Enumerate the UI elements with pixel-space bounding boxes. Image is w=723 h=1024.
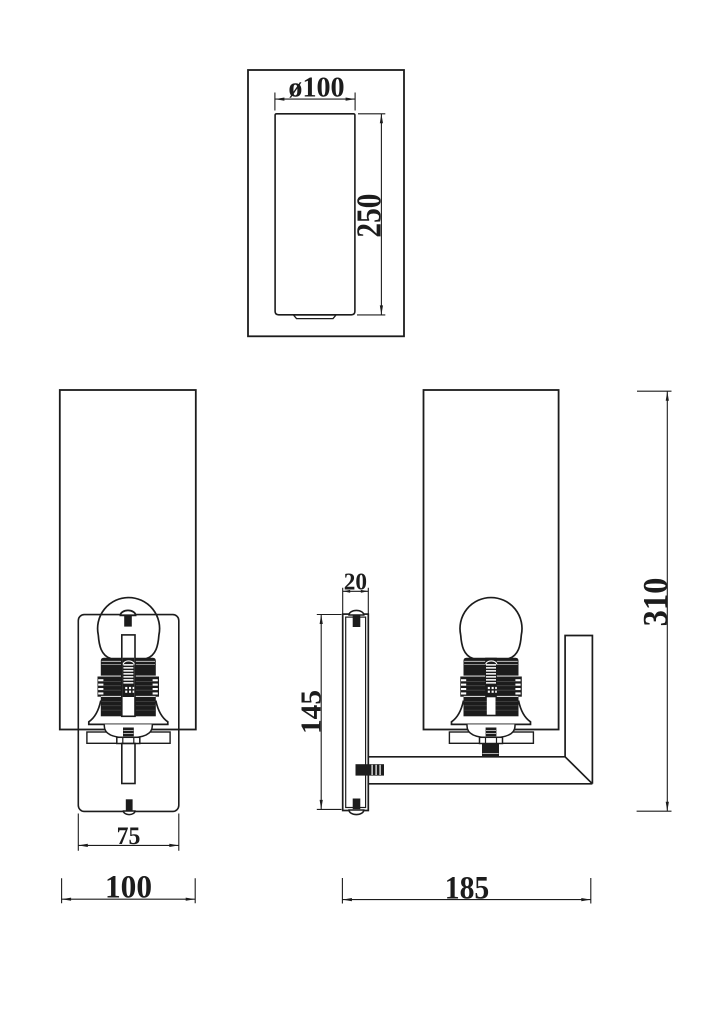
svg-text:145: 145 (296, 690, 327, 734)
svg-text:20: 20 (344, 569, 367, 596)
svg-text:100: 100 (105, 868, 152, 905)
svg-text:185: 185 (445, 869, 490, 906)
svg-text:310: 310 (637, 578, 675, 627)
svg-text:250: 250 (349, 194, 388, 238)
svg-text:75: 75 (117, 822, 141, 850)
svg-text:ø100: ø100 (288, 72, 344, 103)
